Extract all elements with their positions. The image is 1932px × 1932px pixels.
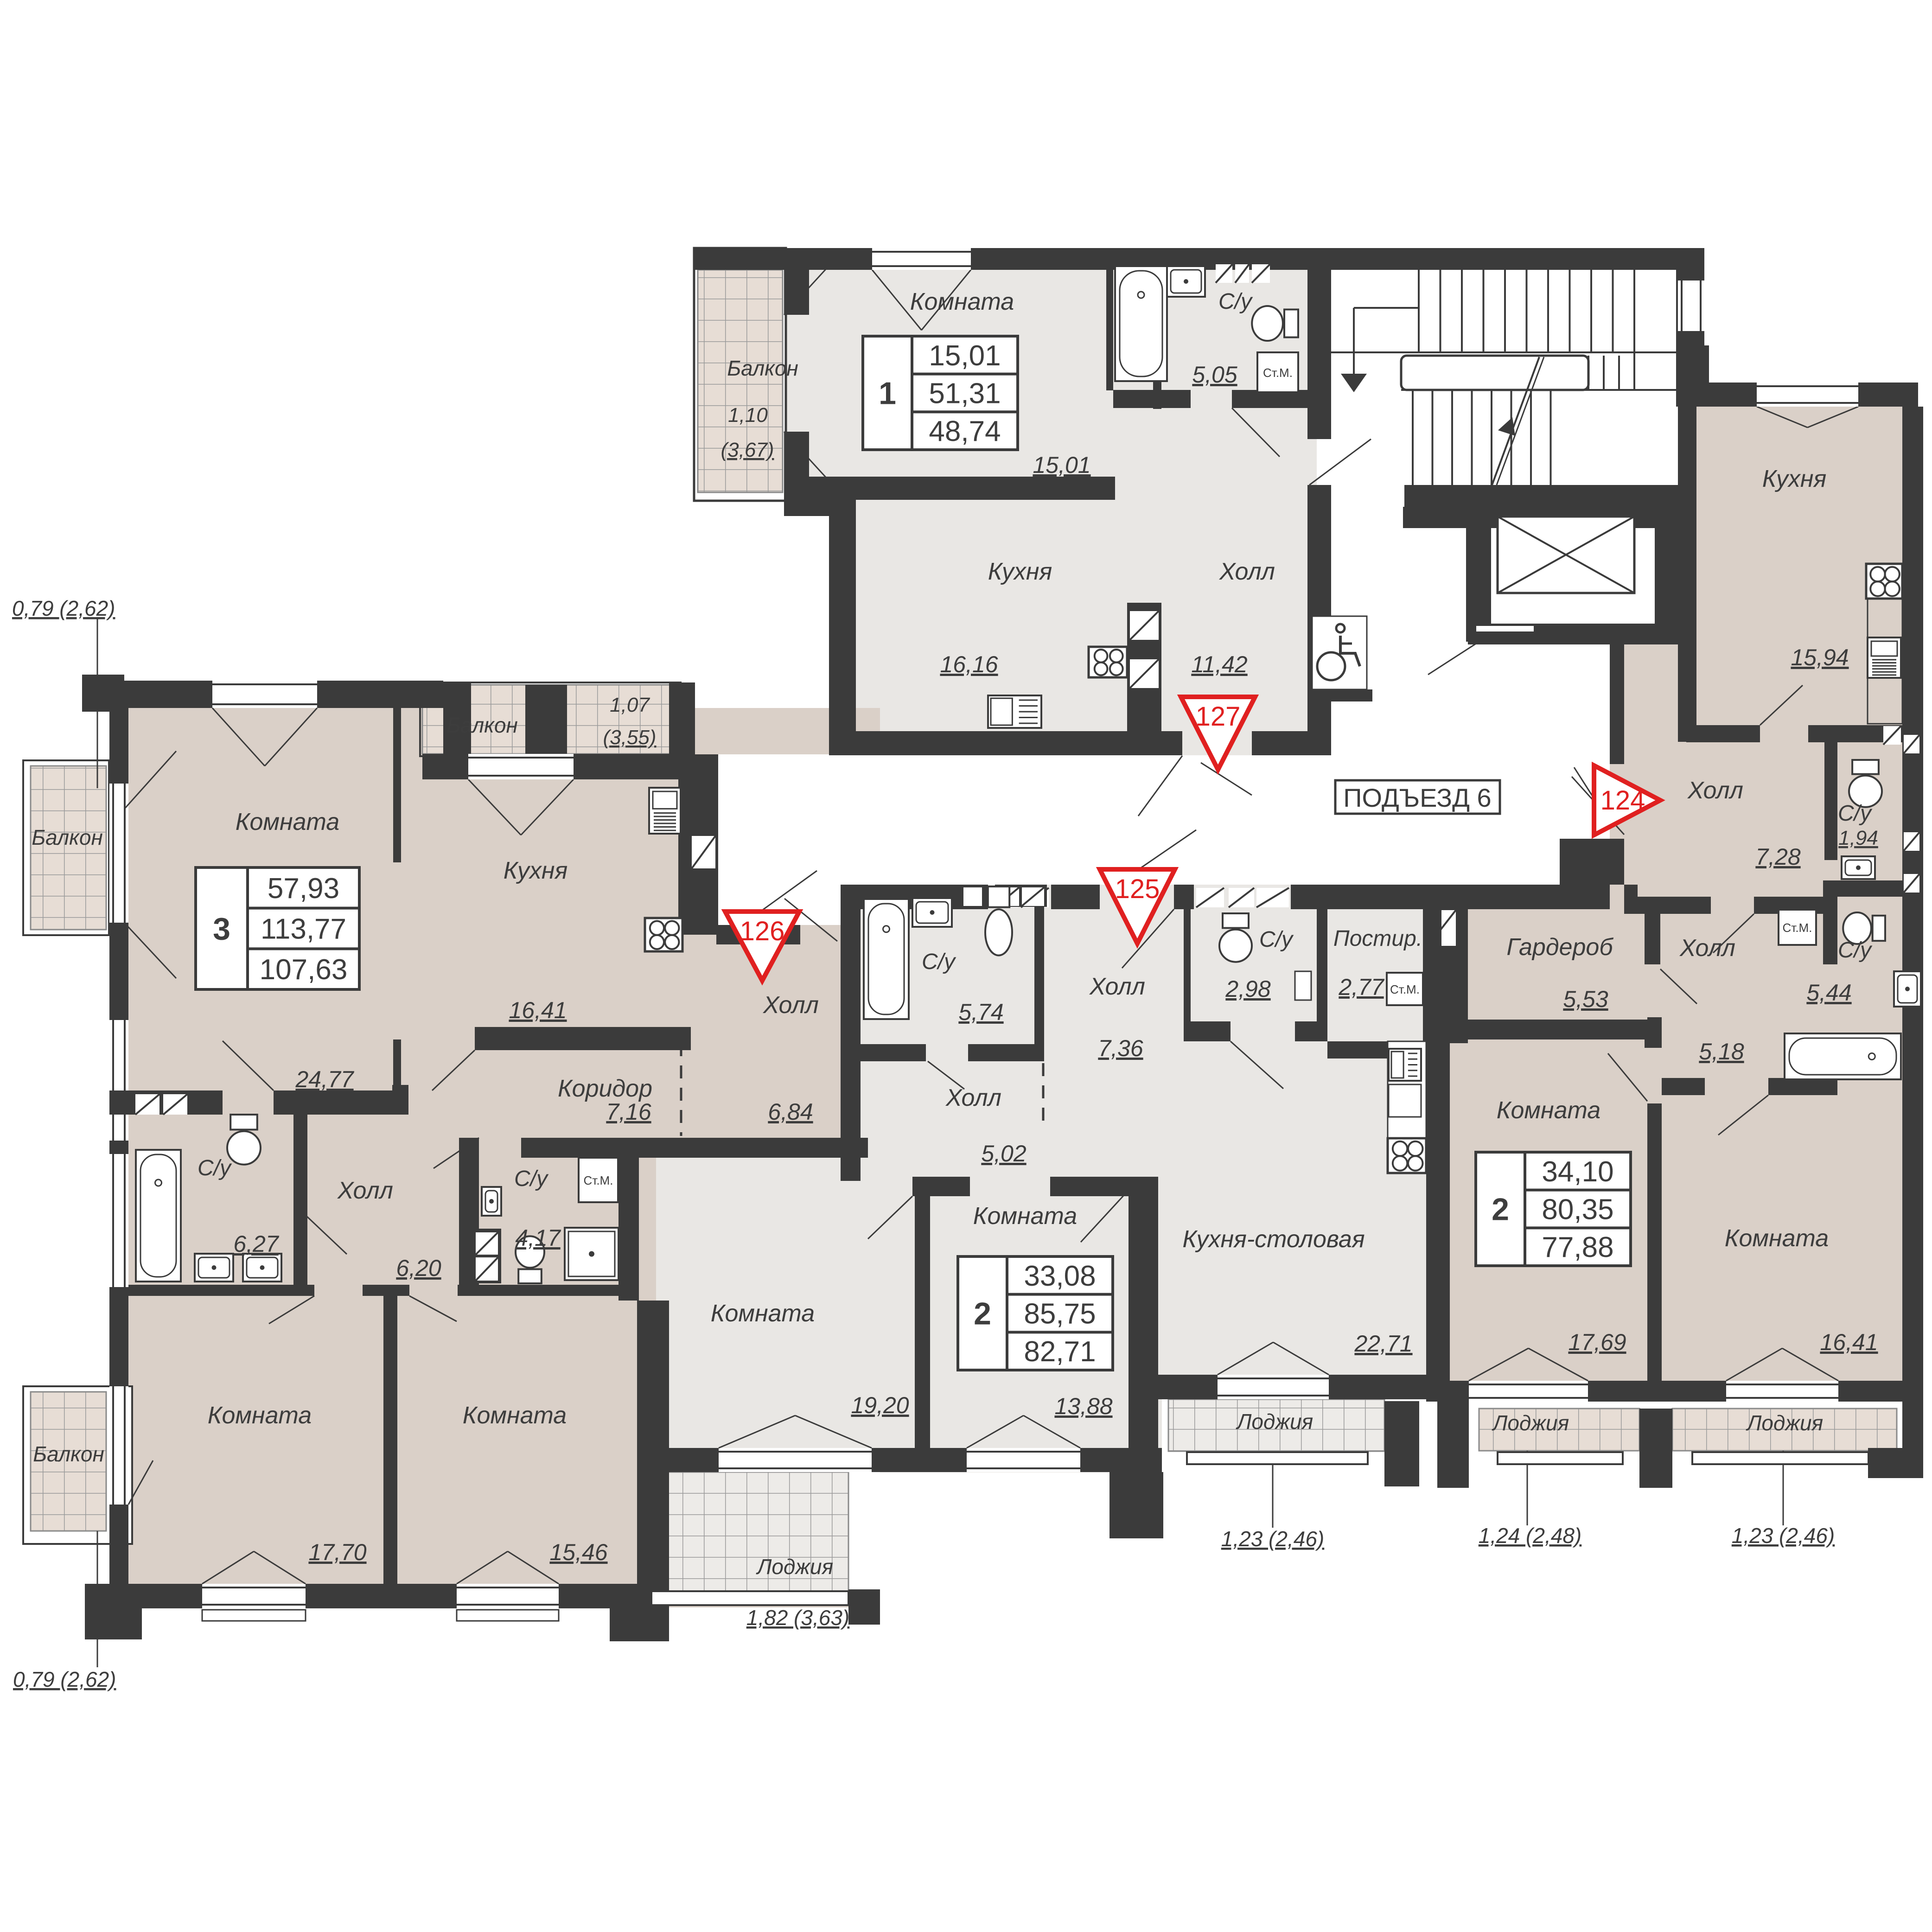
svg-text:80,35: 80,35 (1542, 1194, 1613, 1226)
svg-text:Балкон: Балкон (446, 713, 518, 737)
svg-text:2: 2 (1492, 1192, 1509, 1227)
svg-text:126: 126 (740, 916, 785, 946)
svg-text:15,01: 15,01 (929, 340, 1001, 372)
svg-text:7,28: 7,28 (1755, 844, 1801, 870)
svg-text:Кухня: Кухня (504, 857, 567, 884)
svg-text:Холл: Холл (1687, 777, 1743, 804)
svg-text:Кухня: Кухня (1762, 465, 1826, 492)
svg-text:Лоджия: Лоджия (756, 1555, 833, 1579)
svg-text:Лоджия: Лоджия (1236, 1409, 1313, 1434)
svg-text:Постир.: Постир. (1333, 926, 1422, 951)
svg-text:7,36: 7,36 (1098, 1035, 1143, 1061)
svg-text:Гардероб: Гардероб (1506, 934, 1613, 961)
svg-text:127: 127 (1196, 701, 1241, 732)
svg-text:0,79 (2,62): 0,79 (2,62) (12, 596, 115, 620)
svg-text:16,41: 16,41 (1820, 1329, 1878, 1355)
svg-text:113,77: 113,77 (261, 913, 346, 945)
svg-text:2: 2 (974, 1296, 991, 1332)
svg-text:Комната: Комната (1497, 1097, 1600, 1124)
svg-text:С/у: С/у (514, 1167, 549, 1191)
svg-text:57,93: 57,93 (268, 873, 339, 905)
svg-text:ПОДЪЕЗД 6: ПОДЪЕЗД 6 (1343, 783, 1491, 812)
svg-text:С/у: С/у (922, 950, 956, 974)
svg-text:Холл: Холл (1679, 935, 1735, 962)
svg-text:17,69: 17,69 (1568, 1329, 1626, 1355)
svg-text:2,77: 2,77 (1338, 974, 1385, 1000)
svg-text:Ст.М.: Ст.М. (1263, 366, 1293, 380)
svg-text:Холл: Холл (337, 1177, 393, 1204)
svg-text:Комната: Комната (236, 809, 339, 835)
svg-text:Ст.М.: Ст.М. (1390, 982, 1420, 996)
svg-text:33,08: 33,08 (1024, 1260, 1096, 1292)
svg-text:125: 125 (1115, 874, 1160, 904)
svg-text:17,70: 17,70 (308, 1539, 366, 1565)
svg-text:5,74: 5,74 (958, 999, 1003, 1025)
svg-text:Ст.М.: Ст.М. (1783, 921, 1812, 935)
svg-text:1,07: 1,07 (610, 694, 650, 716)
svg-text:Комната: Комната (1725, 1225, 1829, 1252)
svg-text:Комната: Комната (208, 1402, 312, 1429)
svg-text:7,16: 7,16 (606, 1099, 651, 1125)
svg-text:16,16: 16,16 (940, 651, 998, 677)
svg-text:С/у: С/у (1838, 938, 1873, 963)
svg-text:Ст.М.: Ст.М. (584, 1173, 613, 1187)
svg-text:13,88: 13,88 (1054, 1393, 1112, 1419)
svg-text:Коридор: Коридор (558, 1075, 652, 1102)
svg-text:5,18: 5,18 (1699, 1039, 1744, 1065)
svg-text:Балкон: Балкон (32, 825, 103, 849)
svg-text:6,84: 6,84 (768, 1099, 813, 1125)
svg-text:24,77: 24,77 (295, 1066, 354, 1092)
svg-text:Холл: Холл (945, 1084, 1001, 1111)
svg-text:Комната: Комната (973, 1203, 1077, 1230)
svg-text:Балкон: Балкон (727, 356, 798, 380)
svg-text:82,71: 82,71 (1024, 1336, 1096, 1368)
svg-text:15,01: 15,01 (1033, 452, 1090, 478)
svg-text:Холл: Холл (1089, 973, 1145, 1000)
svg-text:11,42: 11,42 (1191, 651, 1248, 677)
svg-text:Холл: Холл (763, 992, 819, 1019)
svg-text:4,17: 4,17 (515, 1225, 561, 1251)
svg-text:С/у: С/у (1259, 927, 1294, 952)
svg-text:5,05: 5,05 (1192, 362, 1237, 388)
svg-text:С/у: С/у (198, 1156, 232, 1180)
svg-text:Лоджия: Лоджия (1492, 1411, 1569, 1435)
svg-text:2,98: 2,98 (1225, 976, 1271, 1002)
svg-text:51,31: 51,31 (929, 378, 1001, 410)
svg-text:1,23 (2,46): 1,23 (2,46) (1732, 1524, 1835, 1548)
svg-text:5,53: 5,53 (1563, 986, 1608, 1012)
svg-text:15,46: 15,46 (549, 1539, 607, 1565)
svg-text:Кухня: Кухня (988, 558, 1052, 585)
svg-text:Комната: Комната (463, 1402, 567, 1429)
svg-text:С/у: С/у (1838, 801, 1873, 826)
svg-text:1,23 (2,46): 1,23 (2,46) (1221, 1527, 1324, 1551)
svg-text:0,79 (2,62): 0,79 (2,62) (13, 1667, 116, 1691)
svg-text:1,82 (3,63): 1,82 (3,63) (746, 1606, 849, 1630)
svg-text:Комната: Комната (711, 1300, 815, 1327)
svg-text:3: 3 (213, 912, 230, 947)
svg-text:107,63: 107,63 (260, 954, 348, 986)
svg-text:Кухня-столовая: Кухня-столовая (1182, 1226, 1365, 1253)
svg-text:15,94: 15,94 (1791, 644, 1849, 670)
svg-text:Балкон: Балкон (33, 1442, 104, 1466)
svg-text:1,94: 1,94 (1838, 827, 1878, 849)
svg-text:(3,67): (3,67) (721, 439, 774, 461)
svg-text:77,88: 77,88 (1542, 1231, 1613, 1263)
svg-text:6,20: 6,20 (396, 1255, 441, 1281)
svg-text:5,44: 5,44 (1806, 980, 1851, 1006)
svg-text:Холл: Холл (1219, 558, 1275, 585)
svg-text:Лоджия: Лоджия (1746, 1411, 1823, 1435)
svg-text:1,24 (2,48): 1,24 (2,48) (1479, 1524, 1581, 1548)
svg-text:48,74: 48,74 (929, 415, 1001, 447)
svg-text:1: 1 (879, 376, 896, 411)
svg-text:16,41: 16,41 (509, 997, 567, 1023)
svg-text:С/у: С/у (1218, 289, 1253, 314)
svg-text:6,27: 6,27 (233, 1231, 280, 1257)
svg-text:22,71: 22,71 (1354, 1331, 1412, 1357)
svg-text:124: 124 (1600, 785, 1645, 816)
svg-text:85,75: 85,75 (1024, 1298, 1096, 1330)
svg-text:19,20: 19,20 (851, 1392, 909, 1418)
svg-text:Комната: Комната (910, 288, 1014, 315)
svg-text:(3,55): (3,55) (603, 726, 657, 749)
svg-text:5,02: 5,02 (981, 1141, 1027, 1167)
svg-text:34,10: 34,10 (1542, 1156, 1613, 1188)
svg-text:1,10: 1,10 (728, 404, 768, 427)
